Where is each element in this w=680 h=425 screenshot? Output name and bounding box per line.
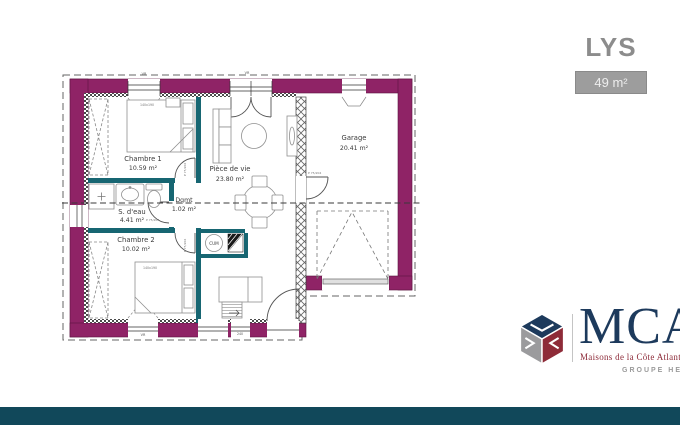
room-area-garage: 20.41 m² bbox=[340, 145, 369, 152]
shutter-label-2: VR bbox=[245, 71, 250, 75]
room-area-chambre2: 10.02 m² bbox=[122, 246, 151, 253]
door2-size-label: P 75/204 bbox=[183, 239, 187, 252]
wardrobe-2 bbox=[89, 242, 108, 318]
duct-symbol bbox=[228, 234, 243, 252]
water-heater-label: CUM bbox=[209, 241, 219, 246]
shower bbox=[89, 184, 114, 209]
page-title: LYS bbox=[575, 32, 647, 63]
entrance-door bbox=[267, 289, 299, 321]
room-area-sdeau: 4.41 m² bbox=[120, 217, 145, 224]
room-label-piece-de-vie: Pièce de vie bbox=[210, 165, 251, 173]
sofa bbox=[213, 109, 231, 163]
shutter-label-3: VR bbox=[141, 333, 146, 337]
furniture-chambre1 bbox=[89, 98, 195, 175]
french-door-left bbox=[231, 97, 251, 117]
model-block: LYS 49 m² bbox=[575, 32, 647, 94]
room-label-sdeau: S. d'eau bbox=[118, 208, 145, 216]
door3-size-label: P 75/204 bbox=[146, 218, 159, 222]
furniture-chambre2 bbox=[89, 242, 195, 318]
bed2-size-label: 140x190 bbox=[143, 266, 157, 270]
bedside-shelf bbox=[166, 98, 180, 107]
double-bed-1 bbox=[127, 100, 195, 152]
room-area-degagement: 1.02 m² bbox=[172, 206, 197, 213]
shutter-label-1: VR bbox=[142, 72, 147, 76]
dining-table bbox=[235, 176, 283, 228]
technical-closet: CUM bbox=[206, 234, 244, 252]
furniture-sdeau bbox=[89, 184, 162, 209]
page: CUM Chambre 1 10.59 m² S. d'eau 4.41 m² … bbox=[0, 0, 680, 425]
tv-unit bbox=[287, 116, 297, 156]
window-dim-label: 240 bbox=[237, 332, 243, 336]
garage-door bbox=[317, 211, 388, 284]
footer-bar bbox=[0, 407, 680, 425]
room-area-chambre1: 10.59 m² bbox=[129, 165, 158, 172]
wall-garage-bottom-right bbox=[389, 276, 412, 290]
french-door-right bbox=[251, 97, 271, 117]
wardrobe-1 bbox=[89, 99, 108, 175]
door1-size-label: P 75/204 bbox=[183, 163, 187, 176]
washbasin bbox=[116, 184, 144, 205]
room-label-garage: Garage bbox=[342, 134, 367, 142]
bed1-size-label: 140x190 bbox=[140, 103, 154, 107]
wall-right-garage bbox=[398, 79, 412, 290]
door4-size-label: P 75/204 bbox=[308, 171, 321, 175]
room-area-piece-de-vie: 23.80 m² bbox=[216, 176, 245, 183]
door-garage-access bbox=[306, 177, 328, 199]
toilet bbox=[146, 184, 162, 208]
round-table bbox=[242, 124, 267, 149]
area-badge: 49 m² bbox=[575, 71, 647, 94]
furniture-living bbox=[213, 109, 297, 318]
kitchen-counter bbox=[219, 277, 262, 318]
wall-garage-bottom-left bbox=[306, 276, 322, 290]
room-label-chambre2: Chambre 2 bbox=[117, 236, 154, 244]
room-label-chambre1: Chambre 1 bbox=[124, 155, 161, 163]
